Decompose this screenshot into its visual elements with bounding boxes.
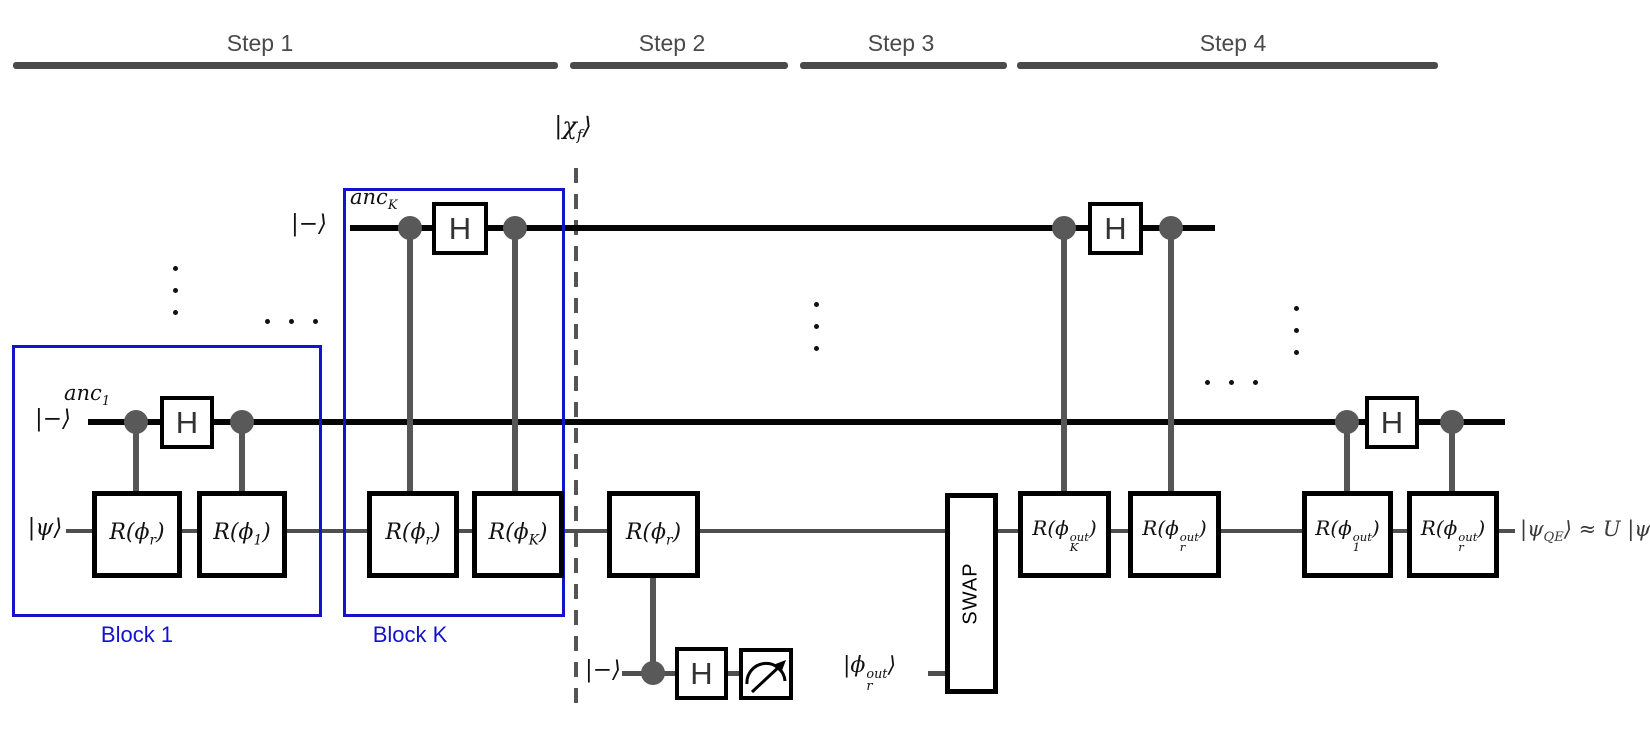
ellipsis-vertical-icon xyxy=(814,302,819,351)
swap-label: SWAP xyxy=(960,562,983,624)
control-line xyxy=(1061,228,1067,492)
meter-icon xyxy=(743,652,789,696)
gate-h-step2: H xyxy=(675,647,728,700)
phi-r-out-state-label: |ϕoutr⟩ xyxy=(843,653,896,692)
ellipsis-vertical-icon xyxy=(173,266,178,315)
gate-h-blockk: H xyxy=(432,202,488,255)
step-2-label: Step 2 xyxy=(572,30,772,58)
step-3-rule xyxy=(800,62,1007,69)
gate-r-phi-k-blockk: R(ϕK) xyxy=(472,491,564,578)
gate-r-phi-1-block1: R(ϕ1) xyxy=(197,491,287,578)
ancilla-k-label: ancK xyxy=(350,185,398,213)
control-dot xyxy=(1335,410,1359,434)
block-k-label: Block K xyxy=(335,622,485,648)
gate-r-phi-k-out: R(ϕoutK) xyxy=(1018,491,1111,578)
control-dot xyxy=(1159,216,1183,240)
ket-psi-input: |ψ⟩ xyxy=(16,515,74,541)
ket-minus-measure-ancilla: |−⟩ xyxy=(574,657,632,683)
measurement-box xyxy=(739,648,793,700)
step-2-rule xyxy=(570,62,788,69)
step-1-rule xyxy=(13,62,558,69)
output-state-label: |ψQE⟩ ≈ U |ψ⟩ xyxy=(1520,517,1650,545)
step-4-label: Step 4 xyxy=(1133,30,1333,58)
ellipsis-horizontal-icon xyxy=(265,319,318,324)
ket-minus-ancilla-k: |−⟩ xyxy=(280,211,338,237)
gate-r-phi-r-blockk: R(ϕr) xyxy=(367,491,459,578)
gate-h-block1: H xyxy=(160,396,214,449)
step1-step2-boundary-dashed-line xyxy=(574,168,578,706)
gate-r-phi-1-out: R(ϕout1) xyxy=(1302,491,1393,578)
chi-f-state-label: |χf⟩ xyxy=(523,112,623,144)
ellipsis-vertical-icon xyxy=(1294,306,1299,355)
gate-r-phi-r-out-step4a: R(ϕoutr) xyxy=(1128,491,1221,578)
quantum-circuit-diagram: Step 1 Step 2 Step 3 Step 4 |χf⟩ Block 1… xyxy=(0,0,1650,738)
gate-r-phi-r-step2: R(ϕr) xyxy=(607,491,700,578)
gate-h-step4-top: H xyxy=(1088,202,1143,255)
step-1-label: Step 1 xyxy=(160,30,360,58)
ancilla-1-label: anc1 xyxy=(64,381,110,409)
gate-h-step4-mid: H xyxy=(1365,396,1419,449)
ellipsis-horizontal-icon xyxy=(1205,380,1258,385)
block-1-label: Block 1 xyxy=(62,622,212,648)
ket-minus-ancilla-1: |−⟩ xyxy=(24,406,82,432)
step-3-label: Step 3 xyxy=(801,30,1001,58)
control-line xyxy=(1168,228,1174,492)
control-line xyxy=(650,575,656,673)
control-dot xyxy=(1440,410,1464,434)
step-4-rule xyxy=(1017,62,1438,69)
gate-r-phi-r-out-step4b: R(ϕoutr) xyxy=(1407,491,1499,578)
control-dot xyxy=(1052,216,1076,240)
control-dot xyxy=(641,661,665,685)
wire-phi-out xyxy=(928,671,946,676)
gate-r-phi-r-block1: R(ϕr) xyxy=(92,491,182,578)
gate-swap: SWAP xyxy=(945,493,998,694)
